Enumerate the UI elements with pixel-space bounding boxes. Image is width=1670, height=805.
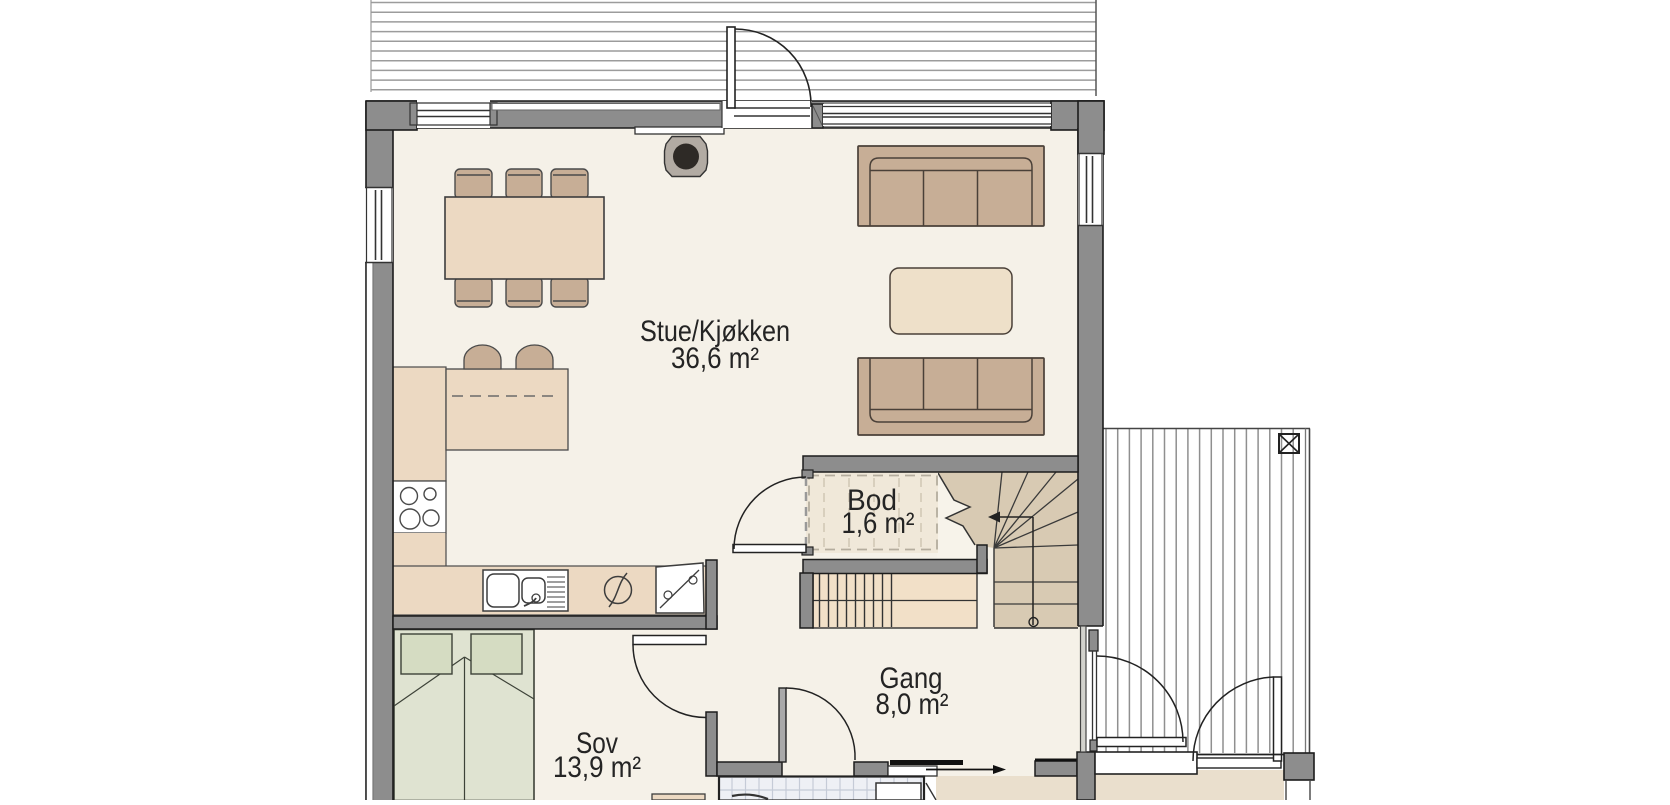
svg-text:1,6 m²: 1,6 m²	[842, 507, 915, 540]
svg-text:8,0 m²: 8,0 m²	[876, 688, 949, 721]
svg-text:13,9 m²: 13,9 m²	[553, 751, 641, 784]
svg-text:36,6 m²: 36,6 m²	[671, 342, 759, 375]
